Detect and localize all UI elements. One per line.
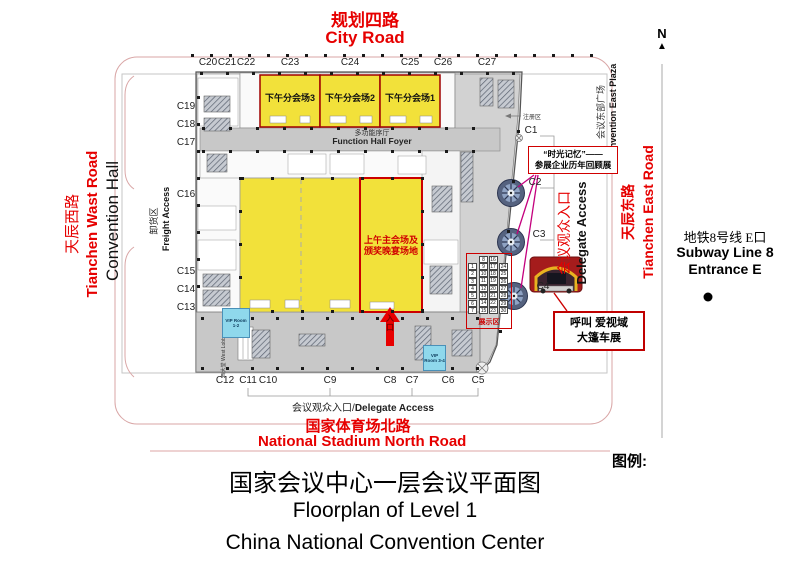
display-booth-6: 6 xyxy=(468,300,477,307)
display-booth-10: 10 xyxy=(479,270,488,277)
road-east-zh: 天辰东路 xyxy=(620,112,640,312)
display-booth-28: 28 xyxy=(499,292,508,299)
caravan-callout: 呼叫 爱视域 大篷车展 xyxy=(553,311,645,351)
entrance-label-c9: C9 xyxy=(315,375,345,386)
display-booth-12: 12 xyxy=(479,285,488,292)
entrance-label-c13: C13 xyxy=(171,302,201,313)
display-booth-20: 20 xyxy=(489,285,498,292)
entrance-label-c23: C23 xyxy=(275,57,305,68)
road-east-en: Tianchen East Road xyxy=(638,112,658,312)
entrance-label-c18: C18 xyxy=(171,119,201,130)
display-booth-11: 11 xyxy=(479,277,488,284)
function-foyer-en: Function Hall Foyer xyxy=(302,136,442,146)
entrance-label-c26: C26 xyxy=(428,57,458,68)
display-booth-18: 18 xyxy=(489,270,498,277)
display-booth-27: 27 xyxy=(499,285,508,292)
entrance-label-c10: C10 xyxy=(253,375,283,386)
road-west-zh: 天辰西路 xyxy=(63,124,83,324)
entrance-label-c1: C1 xyxy=(516,125,546,136)
entrance-label-c2: C2 xyxy=(520,177,550,188)
page-title-en2: China National Convention Center xyxy=(185,531,585,555)
display-area-label: 展示区 xyxy=(467,317,511,327)
memory-line1: “时光记忆”—— xyxy=(529,149,617,160)
south-entrance-bracket xyxy=(248,388,478,396)
display-booth-19: 19 xyxy=(489,277,498,284)
entrance-arrow-label: 入口 xyxy=(385,315,395,332)
entrance-label-c22: C22 xyxy=(231,57,261,68)
road-west-en: Tianchen Wast Road xyxy=(83,124,103,324)
entrance-label-c25: C25 xyxy=(395,57,425,68)
room xyxy=(330,154,364,174)
vip-room-1-2: VIP Room 1-2 xyxy=(222,308,250,338)
entrance-label-c14: C14 xyxy=(171,284,201,295)
registration-label: 注册区 xyxy=(523,112,547,121)
room xyxy=(288,154,326,174)
display-booth-4: 4 xyxy=(468,285,477,292)
entrance-label-c19: C19 xyxy=(171,101,201,112)
display-booth-23: 23 xyxy=(489,307,498,314)
vip-room-3-4: VIP Room 3-4 xyxy=(423,345,446,371)
display-booth-8: 8 xyxy=(479,256,488,263)
page-title-zh: 国家会议中心一层会议平面图 xyxy=(185,463,585,498)
west-lobby-label: 西大堂 West Lobby xyxy=(214,256,234,456)
memory-line2: 参展企业历年回顾展 xyxy=(529,160,617,171)
afternoon-hall-1-label: 下午分会场1 xyxy=(380,91,440,104)
entrance-label-c16: C16 xyxy=(171,189,201,200)
vip-room-1-2-label: VIP Room 1-2 xyxy=(223,318,249,329)
room xyxy=(198,206,236,230)
caravan-line1: 呼叫 爱视域 xyxy=(555,316,643,331)
delegate-access-south: 会议观众入口/Delegate Access xyxy=(263,399,463,414)
display-booth-14: 14 xyxy=(479,299,488,306)
subway-en1: Subway Line 8 xyxy=(660,244,790,260)
vip-room-3-4-label: VIP Room 3-4 xyxy=(424,353,445,364)
entrance-label-c7: C7 xyxy=(397,375,427,386)
display-booth-30: 30 xyxy=(499,307,508,314)
afternoon-hall-3-label: 下午分会场3 xyxy=(260,91,320,104)
display-booth-25: 25 xyxy=(499,270,508,277)
display-booth-7: 7 xyxy=(468,307,477,314)
display-booth-15: 15 xyxy=(479,307,488,314)
convention-hall-label: Convention Hall xyxy=(103,121,123,321)
round-display-2 xyxy=(498,229,525,256)
west-brace-lower xyxy=(125,247,134,377)
display-booth-16: 16 xyxy=(489,256,498,263)
entrance-label-c6: C6 xyxy=(433,375,463,386)
floorplan-page: 规划四路 City Road 天辰西路 Tianchen Wast Road C… xyxy=(0,0,800,566)
display-booth-26: 26 xyxy=(499,278,508,285)
display-booth-3: 3 xyxy=(468,278,477,285)
road-top-en: City Road xyxy=(265,28,465,48)
subway-en2: Entrance E xyxy=(660,261,790,277)
room xyxy=(398,156,426,174)
legend-label: 图例: xyxy=(612,450,672,471)
display-booth-29: 29 xyxy=(499,300,508,307)
entrance-label-c27: C27 xyxy=(472,57,502,68)
display-booth-13: 13 xyxy=(479,292,488,299)
entrance-label-c4: C4 xyxy=(528,281,558,292)
display-booth-1: 1 xyxy=(468,263,477,270)
display-area-table: 1234567816917101811191220132114221523242… xyxy=(466,253,512,329)
west-brace-upper xyxy=(125,76,134,189)
entrance-label-c5: C5 xyxy=(463,375,493,386)
delegate-access-south-zh: 会议观众入口 xyxy=(292,403,352,414)
delegate-access-south-en: Delegate Access xyxy=(355,403,434,414)
memory-exhibition-callout: “时光记忆”—— 参展企业历年回顾展 xyxy=(528,146,618,174)
display-booth-17: 17 xyxy=(489,263,498,270)
entrance-label-c24: C24 xyxy=(335,57,365,68)
display-booth-24: 24 xyxy=(499,263,508,270)
north-label: N xyxy=(652,26,672,41)
display-booth-21: 21 xyxy=(489,292,498,299)
caravan-line2: 大篷车展 xyxy=(555,331,643,346)
afternoon-hall-2-label: 下午分会场2 xyxy=(320,91,380,104)
entrance-label-c15: C15 xyxy=(171,266,201,277)
subway-dot xyxy=(704,293,713,302)
entrance-label-c17: C17 xyxy=(171,137,201,148)
display-booth-2: 2 xyxy=(468,270,477,277)
page-title-en1: Floorplan of Level 1 xyxy=(185,499,585,523)
display-booth-9: 9 xyxy=(479,263,488,270)
road-south-en: National Stadium North Road xyxy=(258,433,458,450)
north-arrow-icon: ▲ xyxy=(652,41,672,52)
display-booth-22: 22 xyxy=(489,299,498,306)
display-booth-5: 5 xyxy=(468,292,477,299)
main-hall-label-line2: 颁奖晚宴场地 xyxy=(341,244,441,257)
entrance-label-c3: C3 xyxy=(524,229,554,240)
